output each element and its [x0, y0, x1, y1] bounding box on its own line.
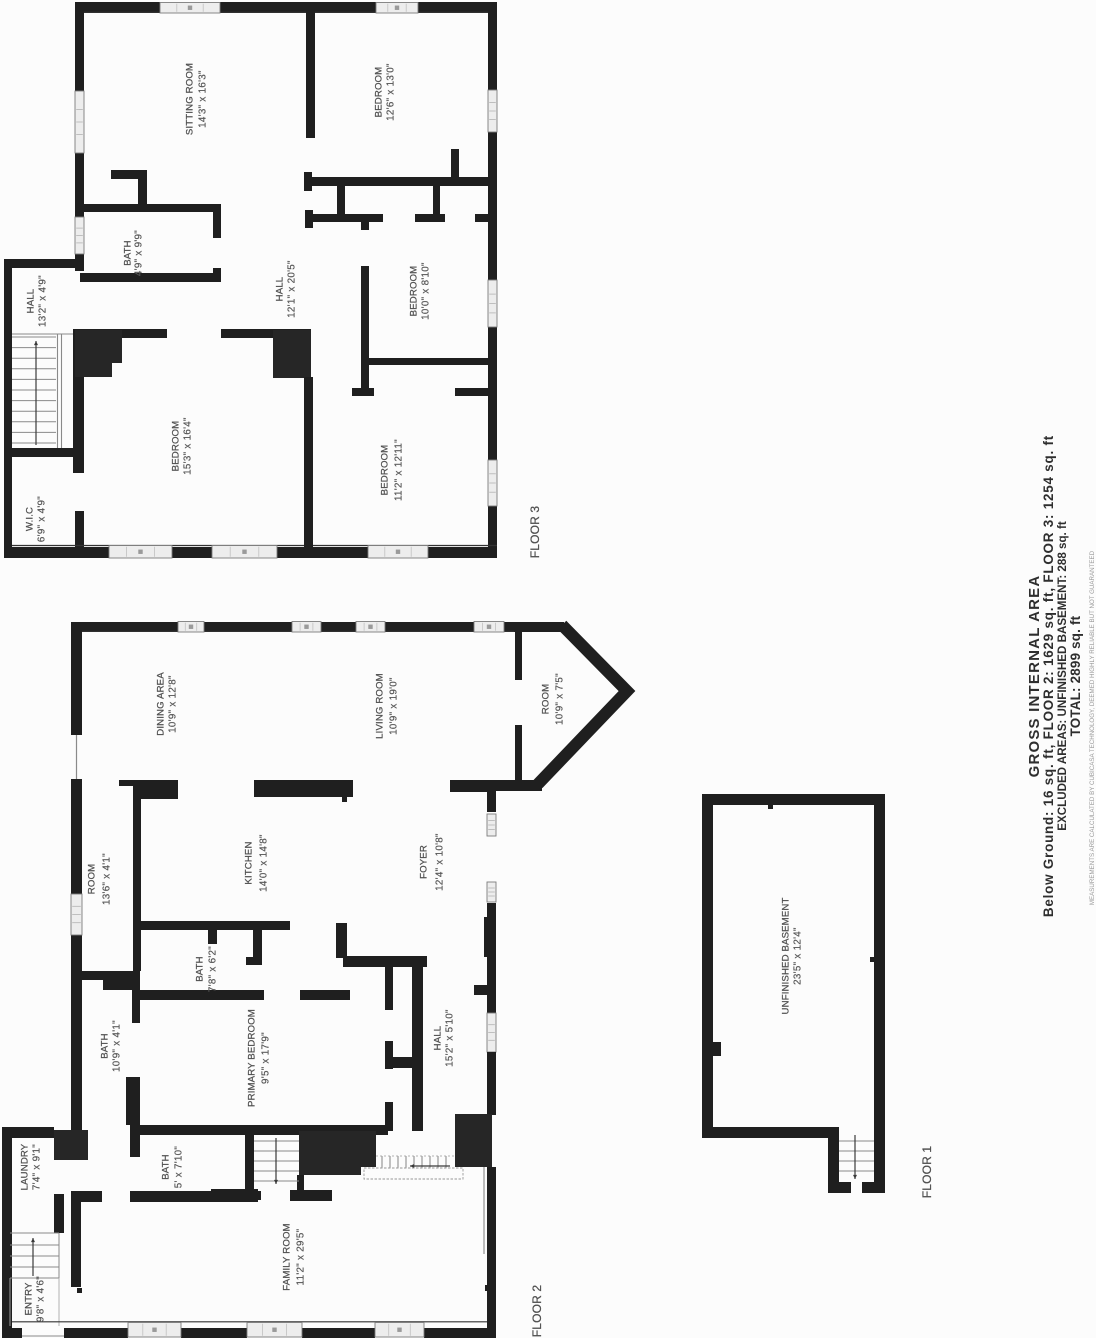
svg-text:ROOM: ROOM — [541, 684, 552, 714]
svg-text:23'5" x 12'4": 23'5" x 12'4" — [793, 927, 804, 985]
svg-text:15'2" x 5'10": 15'2" x 5'10" — [445, 1009, 456, 1067]
svg-text:BEDROOM: BEDROOM — [380, 445, 391, 496]
svg-text:Below Ground: 16 sq. ft, FLOOR: Below Ground: 16 sq. ft, FLOOR 2: 1629 s… — [1041, 435, 1056, 917]
svg-text:DINING AREA: DINING AREA — [156, 672, 167, 736]
svg-text:FOYER: FOYER — [419, 845, 430, 879]
svg-text:KITCHEN: KITCHEN — [244, 841, 255, 884]
svg-text:FAMILY ROOM: FAMILY ROOM — [282, 1223, 293, 1290]
svg-text:15'3" x 16'4": 15'3" x 16'4" — [183, 417, 194, 475]
svg-text:4'9" x 9'9": 4'9" x 9'9" — [134, 230, 145, 276]
svg-text:10'9" x 19'0": 10'9" x 19'0" — [389, 677, 400, 735]
svg-text:FLOOR 3: FLOOR 3 — [528, 506, 542, 559]
svg-text:SITTING ROOM: SITTING ROOM — [185, 63, 196, 135]
svg-text:5' x 7'10": 5' x 7'10" — [174, 1146, 185, 1189]
svg-text:11'2" x 29'5": 11'2" x 29'5" — [296, 1228, 307, 1285]
svg-text:FLOOR 2: FLOOR 2 — [530, 1285, 544, 1338]
svg-text:LAUNDRY: LAUNDRY — [20, 1143, 31, 1190]
svg-text:BEDROOM: BEDROOM — [171, 421, 182, 472]
svg-text:12'6" x 13'0": 12'6" x 13'0" — [386, 63, 397, 121]
svg-text:BATH: BATH — [123, 240, 134, 265]
svg-text:10'9" x 7'5": 10'9" x 7'5" — [555, 673, 566, 725]
svg-text:UNFINISHED BASEMENT: UNFINISHED BASEMENT — [781, 898, 792, 1015]
svg-text:PRIMARY BEDROOM: PRIMARY BEDROOM — [247, 1009, 258, 1107]
svg-text:12'4" x 10'8": 12'4" x 10'8" — [435, 833, 446, 891]
svg-text:13'2" x 4'9": 13'2" x 4'9" — [38, 275, 49, 327]
svg-text:BEDROOM: BEDROOM — [409, 266, 420, 317]
svg-text:11'2" x 12'11": 11'2" x 12'11" — [394, 439, 405, 501]
svg-text:9'5" x 17'9": 9'5" x 17'9" — [261, 1032, 272, 1084]
svg-text:14'0" x 14'8": 14'0" x 14'8" — [259, 834, 270, 892]
svg-text:HALL: HALL — [275, 276, 286, 301]
svg-text:LIVING ROOM: LIVING ROOM — [375, 673, 386, 739]
svg-text:BATH: BATH — [100, 1033, 111, 1058]
svg-text:10'9" x 12'8": 10'9" x 12'8" — [168, 675, 179, 733]
svg-text:10'9" x 4'1": 10'9" x 4'1" — [112, 1020, 123, 1072]
svg-text:MEASUREMENTS ARE CALCULATED BY: MEASUREMENTS ARE CALCULATED BY CUBICASA … — [1089, 550, 1096, 905]
svg-text:W.I.C: W.I.C — [25, 507, 36, 531]
svg-text:10'0" x 8'10": 10'0" x 8'10" — [421, 262, 432, 320]
svg-text:BATH: BATH — [195, 956, 206, 981]
svg-text:TOTAL: 2899 sq. ft: TOTAL: 2899 sq. ft — [1068, 615, 1083, 736]
svg-text:HALL: HALL — [26, 288, 37, 313]
svg-text:13'6" x 4'1": 13'6" x 4'1" — [102, 853, 113, 905]
svg-text:ENTRY: ENTRY — [24, 1282, 35, 1316]
svg-text:FLOOR 1: FLOOR 1 — [920, 1146, 934, 1199]
svg-text:9'8" x 4'6": 9'8" x 4'6" — [36, 1276, 47, 1322]
svg-text:BEDROOM: BEDROOM — [374, 67, 385, 118]
svg-text:7'8" x 6'2": 7'8" x 6'2" — [208, 946, 219, 992]
svg-text:14'3" x 16'3": 14'3" x 16'3" — [198, 70, 209, 128]
svg-text:BATH: BATH — [161, 1154, 172, 1179]
svg-text:ROOM: ROOM — [87, 864, 98, 894]
svg-text:12'1" x 20'5": 12'1" x 20'5" — [287, 260, 298, 318]
svg-text:7'4" x 9'1": 7'4" x 9'1" — [32, 1144, 43, 1190]
svg-text:6'9" x 4'9": 6'9" x 4'9" — [37, 496, 48, 542]
svg-text:HALL: HALL — [433, 1025, 444, 1050]
